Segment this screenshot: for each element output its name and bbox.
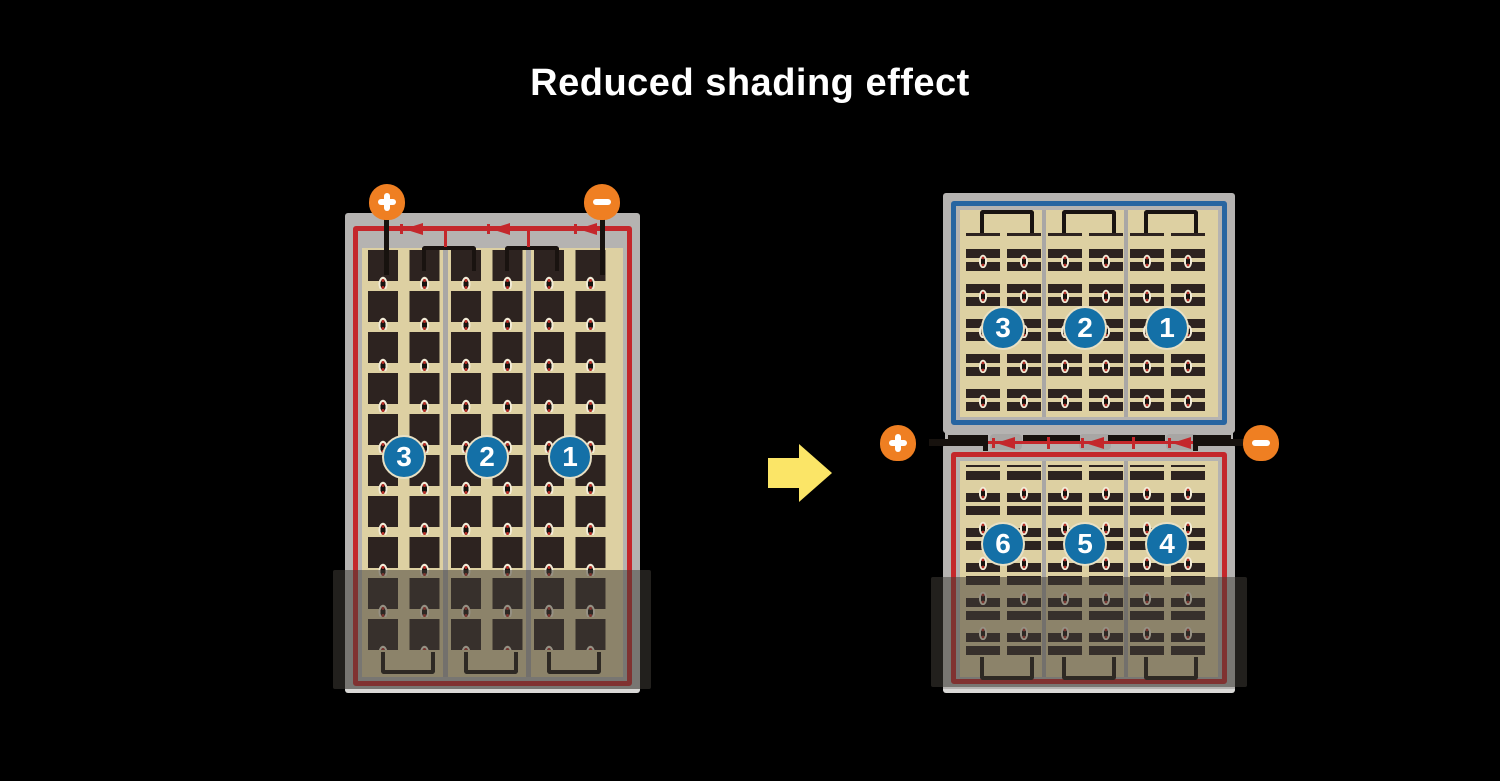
string-number-badge: 3 (382, 435, 426, 479)
bypass-diode-icon (1168, 437, 1194, 449)
minus-symbol: − (1252, 440, 1270, 446)
arrow-head (799, 444, 832, 502)
string-number-badge: 4 (1145, 522, 1189, 566)
bypass-diode-icon (400, 223, 426, 235)
plus-terminal-icon: + (369, 184, 405, 220)
minus-terminal-icon: − (584, 184, 620, 220)
series-jumper-top (505, 246, 559, 271)
series-jumper-top (1144, 210, 1198, 233)
string-number-badge: 1 (1145, 306, 1189, 350)
diagram-canvas: Reduced shading effect + − 3 2 1 (0, 0, 1500, 781)
negative-terminal-lead (1193, 439, 1249, 446)
wire-junction-tick (1047, 437, 1050, 449)
series-jumper-top (980, 210, 1034, 233)
plus-symbol: + (378, 199, 396, 205)
full-cell-module: + − 3 2 1 (345, 213, 640, 693)
plus-terminal-icon: + (880, 425, 916, 461)
series-jumper-top (422, 246, 476, 271)
wire-junction-tick (527, 229, 530, 247)
lead-end-cap (1193, 435, 1198, 451)
diagram-title: Reduced shading effect (0, 62, 1500, 105)
plus-symbol: + (889, 440, 907, 446)
lead-end-cap (983, 435, 988, 451)
busbar-divider (1042, 210, 1046, 417)
minus-symbol: − (593, 199, 611, 205)
bypass-diode-icon (1081, 437, 1107, 449)
wire-junction-tick (444, 229, 447, 247)
arrow-shaft (768, 458, 799, 488)
series-jumper-top (1062, 210, 1116, 233)
shading-overlay (333, 570, 651, 689)
string-number-badge: 5 (1063, 522, 1107, 566)
positive-terminal-lead (929, 439, 985, 446)
string-number-badge: 2 (465, 435, 509, 479)
bypass-diode-icon (992, 437, 1018, 449)
string-number-badge: 3 (981, 306, 1025, 350)
bypass-diode-icon (487, 223, 513, 235)
busbar-divider (1124, 210, 1128, 417)
half-cut-module: 3 2 1 + − (943, 193, 1235, 693)
wire-junction-tick (1132, 437, 1135, 449)
string-number-badge: 2 (1063, 306, 1107, 350)
string-number-badge: 6 (981, 522, 1025, 566)
shading-overlay (931, 577, 1247, 687)
bypass-diode-icon (574, 223, 600, 235)
minus-terminal-icon: − (1243, 425, 1279, 461)
string-number-badge: 1 (548, 435, 592, 479)
